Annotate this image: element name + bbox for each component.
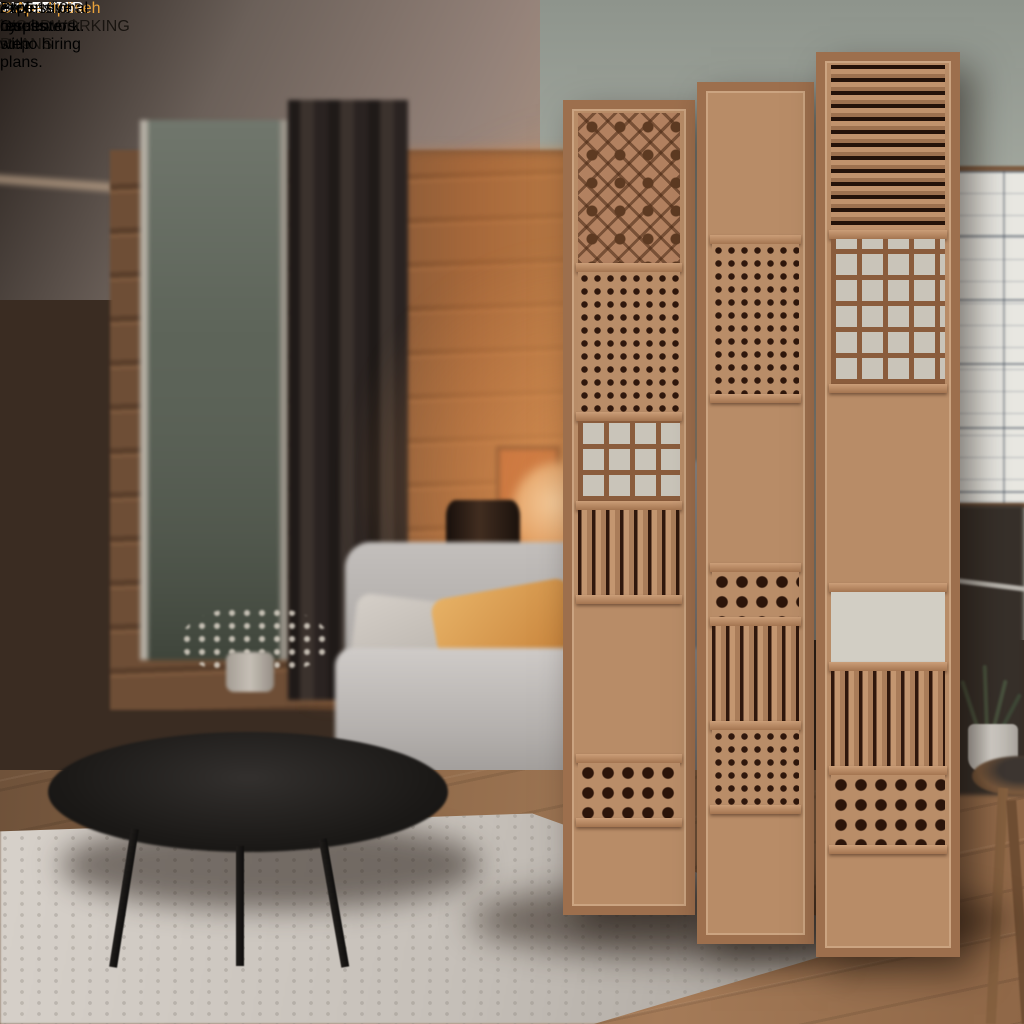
panel-rail: [576, 501, 682, 510]
panel-rail: [576, 818, 682, 827]
panel-rail: [576, 595, 682, 604]
cathedral-chevron-pattern: [578, 604, 680, 754]
bottom-wood-panels: [712, 814, 799, 931]
vertical-slats-pattern: [712, 626, 799, 721]
coffee-table: [48, 732, 448, 852]
grid-window-pattern: [831, 239, 945, 384]
window: [140, 120, 290, 660]
small-grid-pattern: [831, 592, 945, 662]
arched-fan-pattern: [831, 393, 945, 583]
panel-rail: [710, 563, 801, 572]
square-holes-pattern: [578, 763, 680, 818]
solid-board-triangle: [712, 403, 799, 563]
panel-rail: [829, 230, 947, 239]
bottom-wood-panels: [578, 827, 680, 902]
footer-line: expensive carpenters.: [0, 0, 80, 36]
vase: [226, 652, 274, 692]
square-holes-pattern: [712, 572, 799, 617]
panel-rail: [710, 617, 801, 626]
square-holes-pattern: [831, 775, 945, 845]
panel-rail: [710, 721, 801, 730]
grid-window-pattern: [578, 421, 680, 501]
divider-panel-middle: [697, 82, 814, 944]
x-cross-pattern: [712, 95, 799, 235]
ad-poster: BUILD DESIGNER WOODEN ROOM DIVIDERS Step…: [0, 0, 1024, 1024]
panel-rail: [576, 754, 682, 763]
panel-rail: [829, 662, 947, 671]
coffee-table-leg: [236, 846, 244, 966]
vertical-slats-pattern: [831, 671, 945, 766]
louver-pattern: [831, 65, 945, 230]
bottom-wood-panels: [831, 854, 945, 944]
lattice-dot-pattern: [712, 244, 799, 394]
panel-rail: [710, 394, 801, 403]
carved-ornate-pattern: [578, 113, 680, 263]
panel-rail: [829, 384, 947, 393]
panel-rail: [829, 766, 947, 775]
framed-blueprint: [950, 166, 1024, 508]
panel-rail: [710, 235, 801, 244]
lattice-dot-pattern: [578, 272, 680, 412]
panel-rail: [829, 845, 947, 854]
panel-rail: [576, 412, 682, 421]
vertical-slats-pattern: [578, 510, 680, 595]
divider-panel-right: [816, 52, 960, 957]
divider-panel-left: [563, 100, 695, 915]
panel-rail: [576, 263, 682, 272]
panel-rail: [829, 583, 947, 592]
lattice-dot-pattern: [712, 730, 799, 805]
panel-rail: [710, 805, 801, 814]
